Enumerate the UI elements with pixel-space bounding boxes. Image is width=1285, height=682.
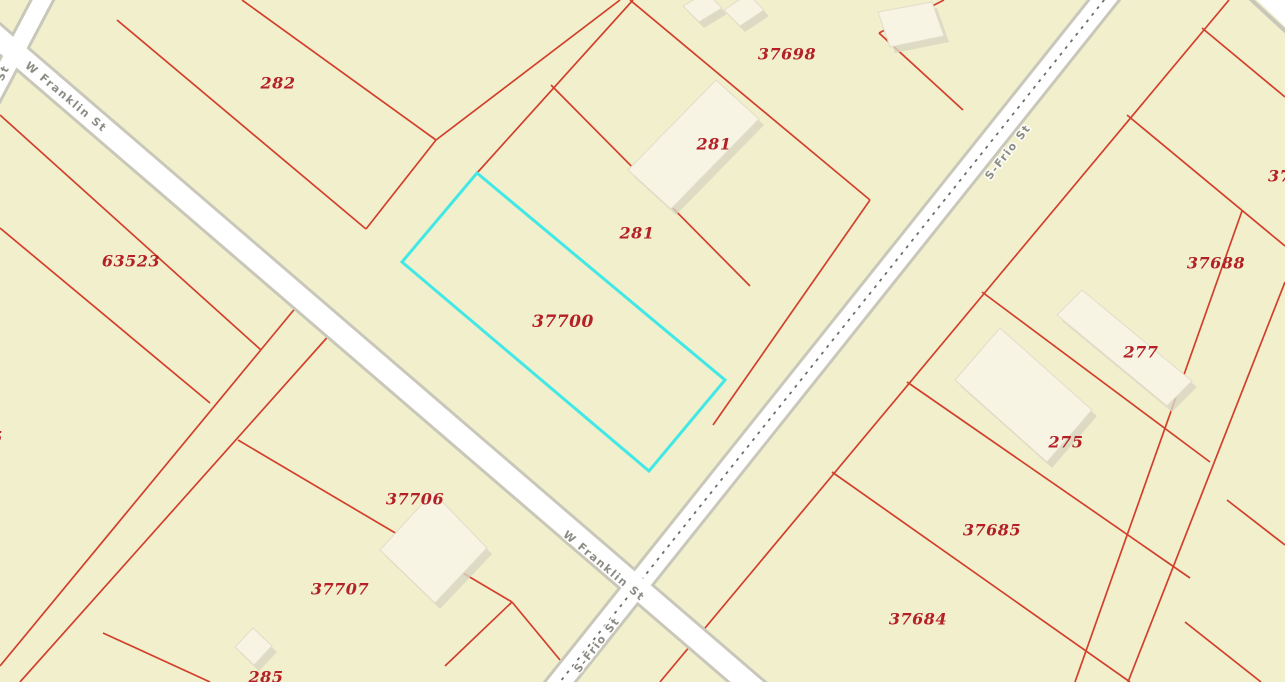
parcel-label-37707: 37707	[311, 580, 369, 599]
map-canvas[interactable]: W Franklin StW Franklin StS-Frio StS-Fri…	[0, 0, 1285, 682]
parcel-label-63523: 63523	[102, 252, 160, 271]
parcel-label-282: 282	[260, 74, 296, 93]
parcel-label-37706: 37706	[386, 490, 444, 509]
parcel-label-37684: 37684	[889, 610, 947, 629]
parcel-label-37688: 37688	[1187, 254, 1245, 273]
parcel-label-37685: 37685	[963, 521, 1021, 540]
parcel-label-281: 281	[619, 224, 655, 243]
parcel-label-275: 275	[1048, 433, 1084, 452]
parcel-label-37698: 37698	[758, 45, 816, 64]
parcel-map-svg[interactable]: W Franklin StW Franklin StS-Frio StS-Fri…	[0, 0, 1285, 682]
parcel-label-37700: 37700	[532, 312, 594, 332]
parcel-label-376: 376	[1268, 167, 1285, 186]
parcel-label-277: 277	[1123, 343, 1159, 362]
parcel-label-281: 281	[696, 135, 732, 154]
parcel-label-285: 285	[248, 668, 284, 682]
parcel-label-5: 5	[0, 428, 3, 447]
